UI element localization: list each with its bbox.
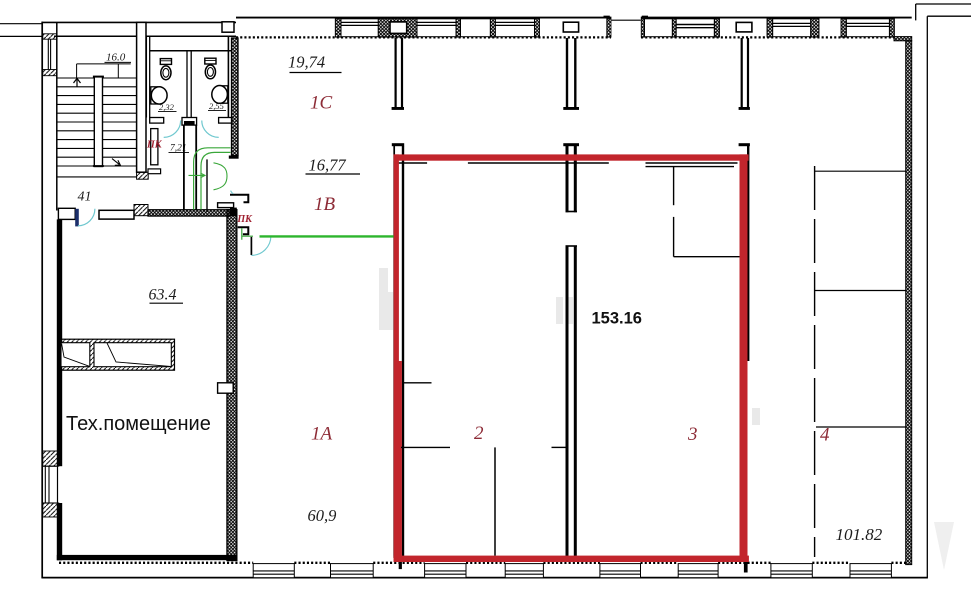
- svg-text:16.0: 16.0: [106, 52, 126, 64]
- svg-text:2,55: 2,55: [209, 101, 224, 111]
- svg-text:2: 2: [474, 423, 484, 444]
- svg-text:101.82: 101.82: [836, 525, 883, 544]
- svg-text:1А: 1А: [311, 424, 333, 445]
- svg-text:16,77: 16,77: [309, 156, 347, 175]
- svg-text:60,9: 60,9: [308, 506, 337, 525]
- svg-text:4: 4: [820, 425, 830, 446]
- svg-text:1В: 1В: [314, 194, 336, 215]
- svg-text:ПК: ПК: [236, 214, 253, 225]
- svg-text:Тех.помещение: Тех.помещение: [66, 413, 211, 435]
- svg-text:63.4: 63.4: [149, 287, 177, 304]
- svg-text:41: 41: [78, 190, 92, 205]
- svg-text:2,32: 2,32: [159, 102, 175, 112]
- svg-text:153.16: 153.16: [592, 310, 642, 328]
- svg-text:1С: 1С: [310, 93, 333, 114]
- svg-text:ПК: ПК: [146, 140, 163, 151]
- svg-text:19,74: 19,74: [288, 53, 325, 72]
- svg-text:3: 3: [687, 424, 698, 445]
